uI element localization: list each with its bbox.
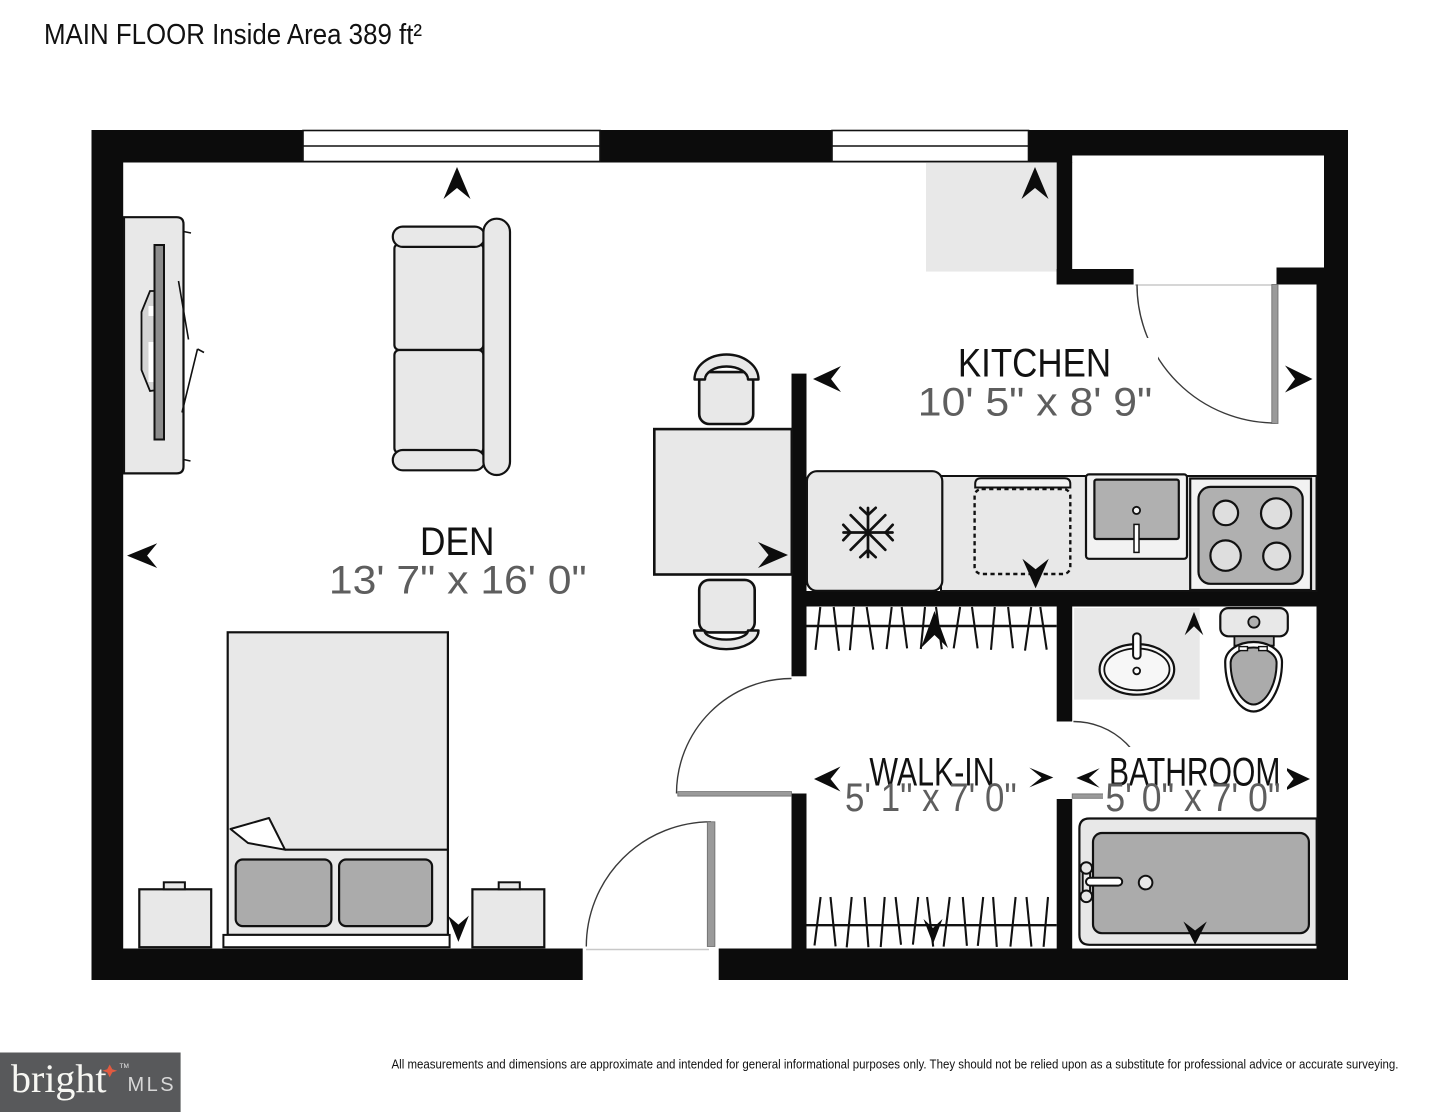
svg-text:KITCHEN: KITCHEN bbox=[958, 342, 1111, 386]
svg-text:10' 5" x 8' 9": 10' 5" x 8' 9" bbox=[918, 381, 1152, 425]
svg-text:bright: bright bbox=[11, 1056, 107, 1101]
svg-text:5' 0" x 7' 0": 5' 0" x 7' 0" bbox=[1105, 776, 1280, 820]
svg-text:5' 1" x 7' 0": 5' 1" x 7' 0" bbox=[845, 776, 1017, 820]
svg-text:MAIN FLOOR Inside Area 389 ft²: MAIN FLOOR Inside Area 389 ft² bbox=[44, 19, 422, 51]
svg-text:MLS: MLS bbox=[128, 1074, 177, 1096]
svg-text:All measurements and dimension: All measurements and dimensions are appr… bbox=[392, 1057, 1399, 1072]
svg-text:13' 7" x 16' 0": 13' 7" x 16' 0" bbox=[329, 558, 587, 602]
svg-text:TM: TM bbox=[120, 1063, 129, 1070]
